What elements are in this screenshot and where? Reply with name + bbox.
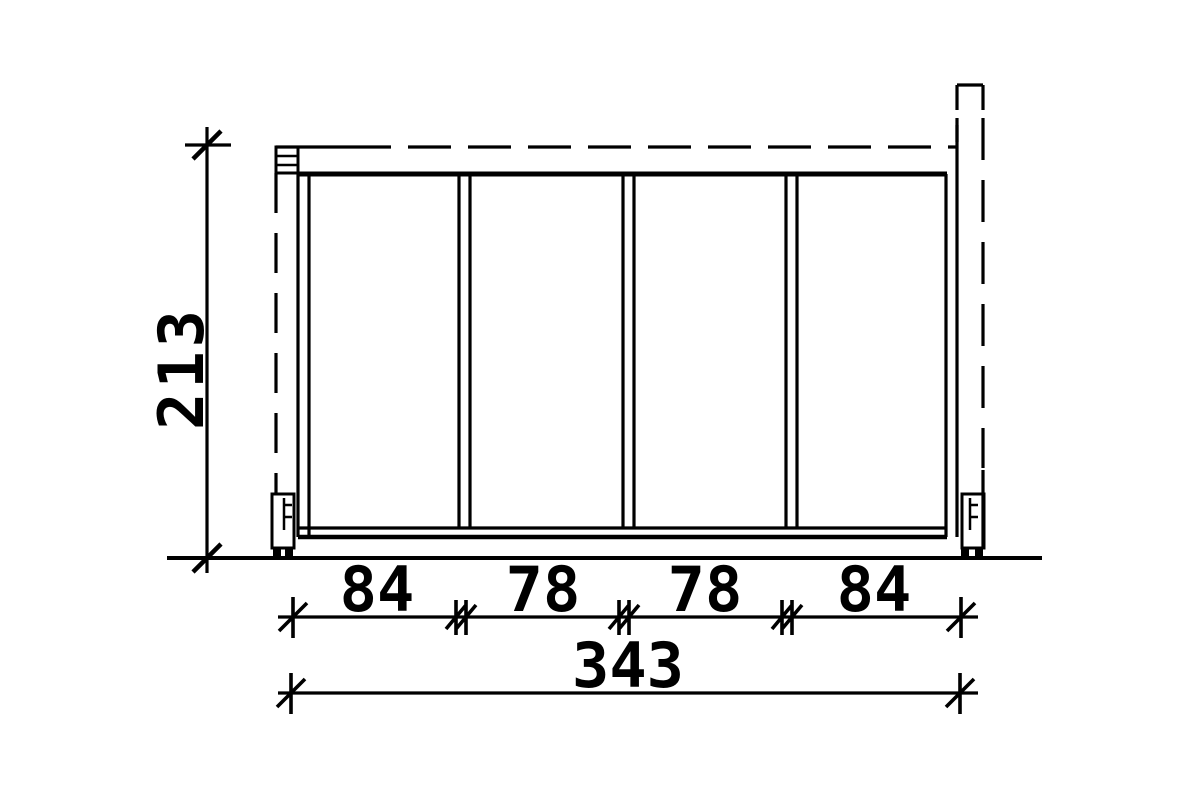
- post-hidden: [957, 85, 983, 548]
- drawing-page: 213 84 78 78 84 343: [0, 0, 1200, 800]
- mullion-lines: [459, 176, 797, 528]
- segment-dimension-label: 78: [668, 553, 743, 626]
- left-stile-lines: [298, 174, 309, 537]
- anchor-foot: [285, 548, 293, 556]
- segment-dimension-label: 78: [506, 553, 581, 626]
- post-anchor-right: [961, 494, 984, 556]
- total-dimension: 343: [277, 629, 978, 714]
- segment-dimension-label: 84: [837, 553, 912, 626]
- segment-dimension: 84 78 78 84: [278, 553, 978, 638]
- anchor-body: [962, 494, 984, 548]
- anchor-foot: [961, 548, 969, 556]
- total-dimension-label: 343: [572, 629, 684, 702]
- rail-end-section: [276, 147, 298, 173]
- rail-end-section-lines: [276, 156, 298, 165]
- height-dimension: 213: [145, 127, 231, 573]
- anchor-foot: [975, 548, 983, 556]
- post-anchor-left: [272, 494, 294, 556]
- post-top-cap: [957, 85, 983, 110]
- side-element-drawing: 213 84 78 78 84 343: [0, 0, 1200, 800]
- anchor-foot: [273, 548, 281, 556]
- anchor-hatch: [284, 498, 292, 530]
- segment-dimension-label: 84: [340, 553, 415, 626]
- anchor-hatch: [970, 498, 978, 530]
- height-dimension-label: 213: [145, 306, 218, 430]
- frame: [276, 125, 957, 537]
- right-stile-lines: [946, 125, 957, 537]
